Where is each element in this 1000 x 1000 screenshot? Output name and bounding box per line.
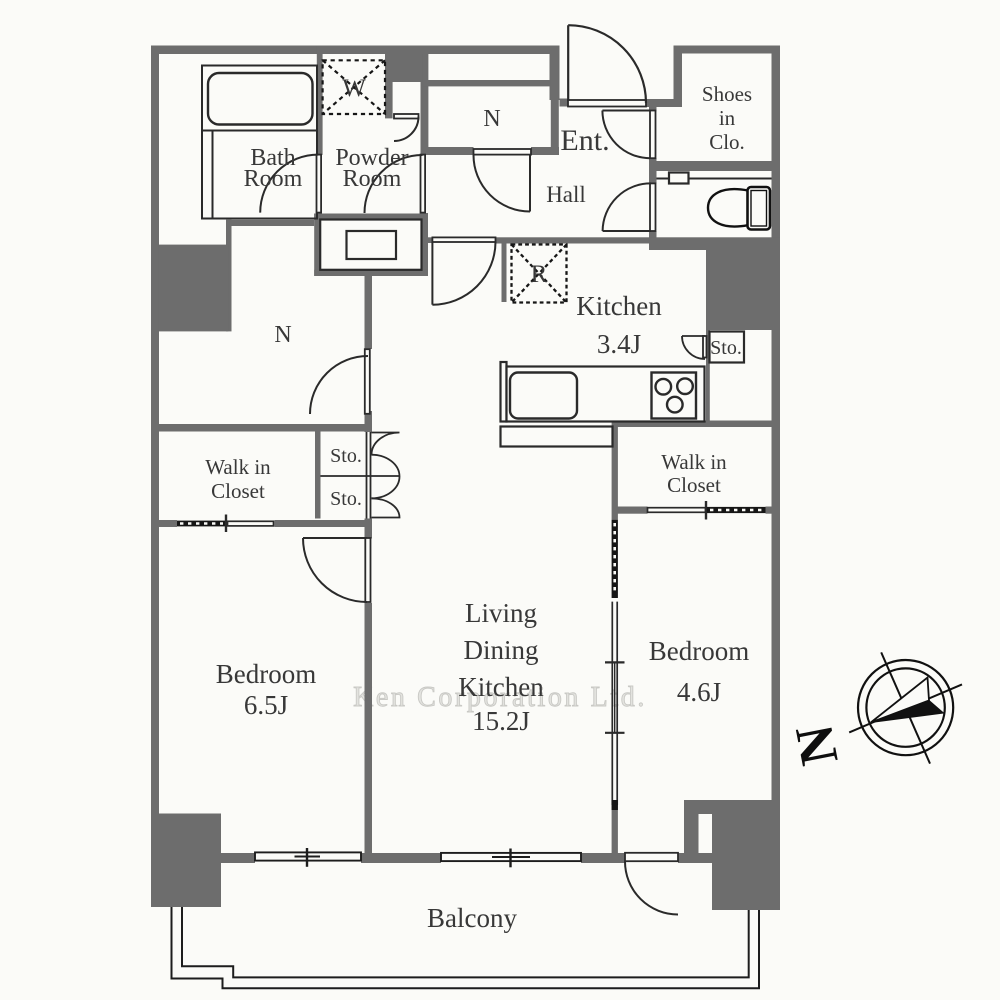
svg-text:4.6J: 4.6J	[677, 677, 721, 707]
svg-text:Hall: Hall	[546, 182, 586, 207]
svg-text:Ent.: Ent.	[560, 124, 609, 157]
svg-text:Closet: Closet	[667, 473, 721, 497]
svg-text:Sto.: Sto.	[330, 445, 362, 467]
svg-text:N: N	[274, 322, 291, 348]
svg-text:Room: Room	[244, 166, 303, 192]
svg-text:N: N	[483, 106, 500, 132]
svg-text:Kitchen: Kitchen	[576, 291, 662, 321]
svg-text:6.5J: 6.5J	[244, 690, 288, 720]
svg-text:Clo.: Clo.	[709, 130, 745, 154]
svg-text:Dining: Dining	[463, 635, 538, 665]
svg-text:Room: Room	[343, 166, 402, 192]
svg-text:Sto.: Sto.	[330, 488, 362, 510]
svg-text:R: R	[531, 261, 548, 288]
svg-text:Living: Living	[465, 598, 537, 628]
svg-text:Walk in: Walk in	[205, 455, 271, 479]
svg-text:Kitchen: Kitchen	[458, 672, 544, 702]
svg-text:Bedroom: Bedroom	[649, 636, 750, 666]
svg-text:Bedroom: Bedroom	[216, 659, 317, 689]
svg-text:Shoes: Shoes	[702, 82, 752, 106]
svg-text:Closet: Closet	[211, 479, 265, 503]
svg-text:Balcony: Balcony	[427, 903, 517, 933]
svg-text:3.4J: 3.4J	[597, 329, 641, 359]
svg-text:Sto.: Sto.	[710, 337, 742, 359]
svg-text:15.2J: 15.2J	[472, 706, 530, 736]
svg-text:W: W	[342, 75, 366, 102]
svg-text:Walk in: Walk in	[661, 450, 727, 474]
svg-text:in: in	[719, 106, 736, 130]
